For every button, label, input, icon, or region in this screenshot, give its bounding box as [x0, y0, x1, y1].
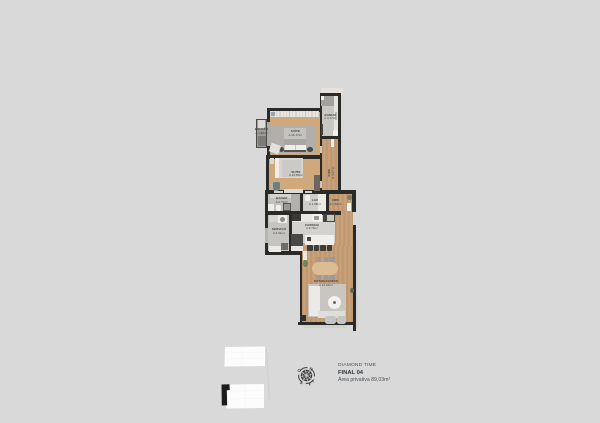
svg-text:L: L: [311, 378, 316, 384]
